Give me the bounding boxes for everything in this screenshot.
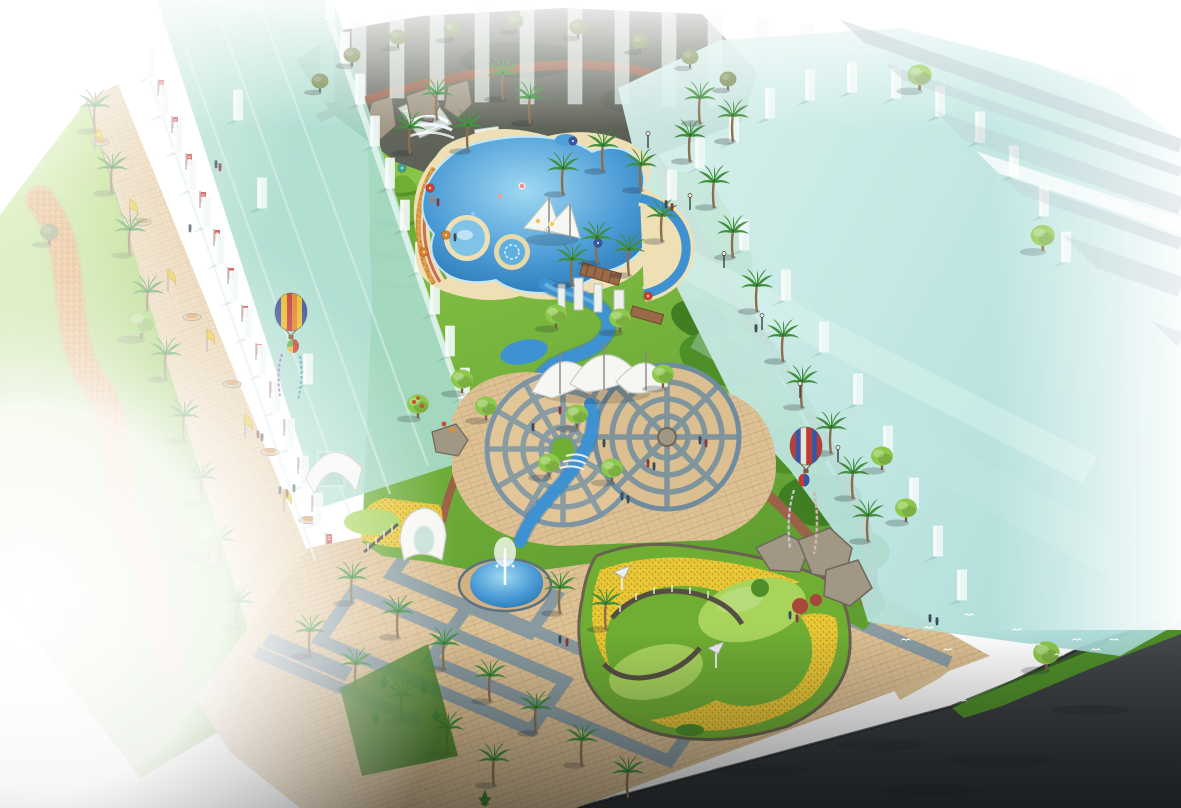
rendering-stage: Bird's-eye perspective rendering of a pa…: [0, 0, 1181, 808]
park-master-plan-rendering: [0, 0, 1181, 808]
atmosphere-overlays: [0, 0, 1181, 808]
